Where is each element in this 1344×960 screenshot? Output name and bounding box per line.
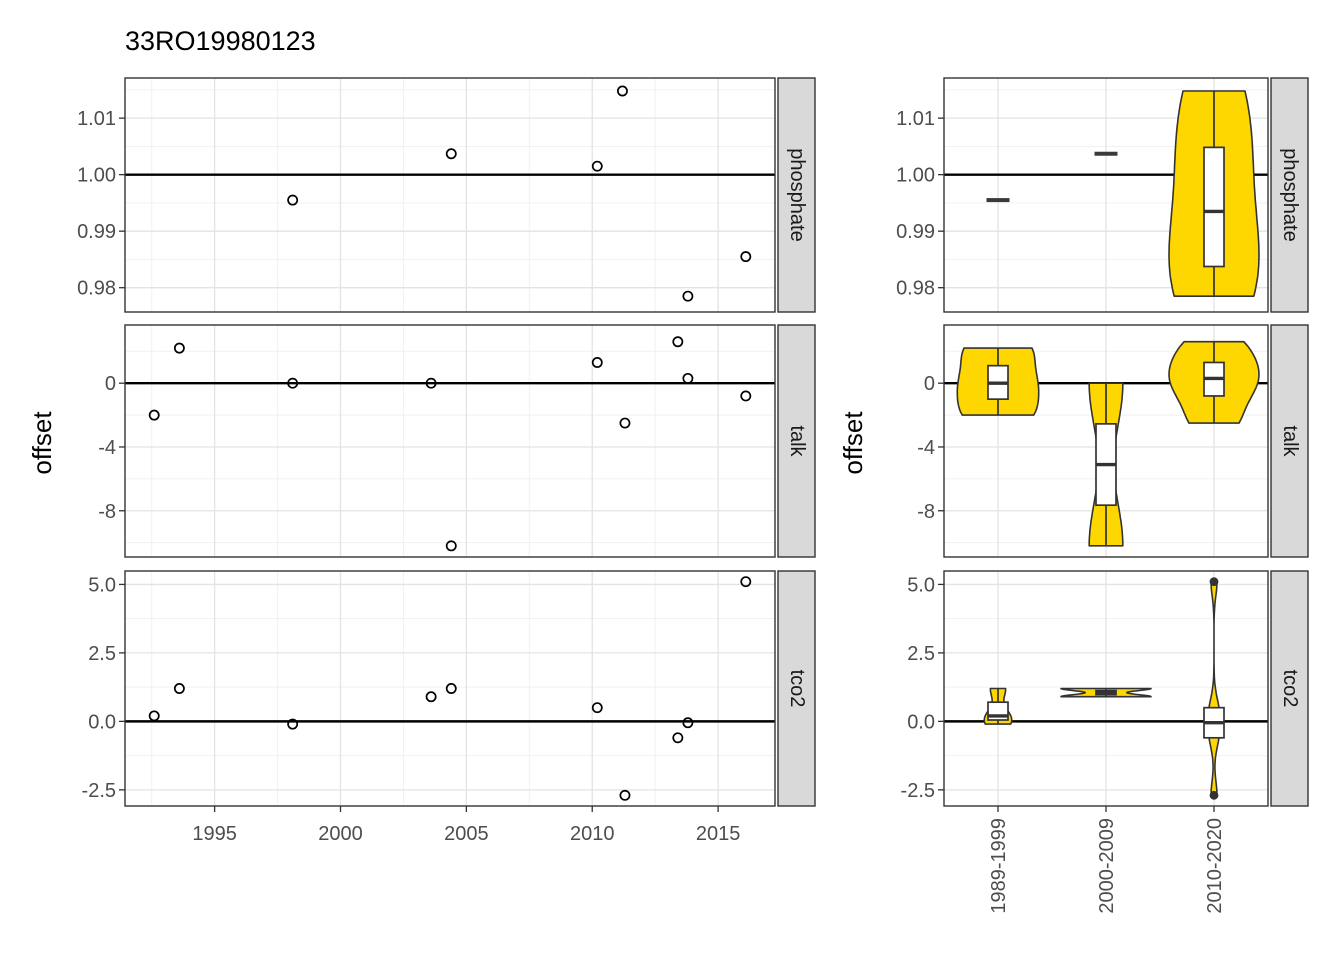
y-tick-label: 1.01 [896, 108, 935, 130]
x-tick-label: 2005 [444, 823, 489, 845]
faceted-plot-svg: 1.011.000.990.98phosphate0-4-8talk5.02.5… [0, 0, 1344, 960]
y-tick-label: 0.99 [77, 221, 116, 243]
facet-strip-label: tco2 [786, 670, 808, 708]
y-tick-label: -8 [98, 501, 116, 523]
plot-canvas: 33RO19980123 offset offset 1.011.000.990… [0, 0, 1344, 960]
y-tick-label: -8 [917, 501, 935, 523]
y-tick-label: 2.5 [88, 643, 116, 665]
x-tick-label: 1995 [192, 823, 237, 845]
y-tick-label: 2.5 [907, 643, 935, 665]
y-tick-label: 0.98 [77, 278, 116, 300]
y-tick-label: 0.98 [896, 278, 935, 300]
outlier-point [1210, 577, 1219, 586]
x-tick-label: 2015 [696, 823, 741, 845]
facet-strip-label: tco2 [1279, 670, 1301, 708]
panel-background [125, 325, 775, 557]
y-tick-label: -4 [917, 437, 935, 459]
violin-dash [987, 198, 1010, 202]
facet-strip-label: phosphate [786, 148, 808, 241]
panel-background [125, 78, 775, 312]
box [1204, 147, 1224, 266]
y-tick-label: -2.5 [901, 780, 935, 802]
y-tick-label: 1.01 [77, 108, 116, 130]
facet-strip-label: talk [1279, 425, 1301, 457]
y-tick-label: 1.00 [77, 165, 116, 187]
y-tick-label: 5.0 [88, 574, 116, 596]
y-tick-label: -4 [98, 437, 116, 459]
x-tick-label: 2000 [318, 823, 363, 845]
y-tick-label: -2.5 [82, 780, 116, 802]
panel-background [125, 571, 775, 806]
y-tick-label: 0 [924, 373, 935, 395]
y-tick-label: 1.00 [896, 165, 935, 187]
x-category-label: 2010-2020 [1204, 818, 1226, 914]
violin-dash [1095, 152, 1118, 156]
x-tick-label: 2010 [570, 823, 615, 845]
outlier-point [1210, 791, 1219, 800]
y-tick-label: 0.0 [907, 711, 935, 733]
facet-strip-label: phosphate [1279, 148, 1301, 241]
y-tick-label: 0.0 [88, 711, 116, 733]
x-category-label: 2000-2009 [1096, 818, 1118, 914]
y-tick-label: 0.99 [896, 221, 935, 243]
y-tick-label: 0 [105, 373, 116, 395]
y-tick-label: 5.0 [907, 574, 935, 596]
facet-strip-label: talk [786, 425, 808, 457]
x-category-label: 1989-1999 [988, 818, 1010, 914]
